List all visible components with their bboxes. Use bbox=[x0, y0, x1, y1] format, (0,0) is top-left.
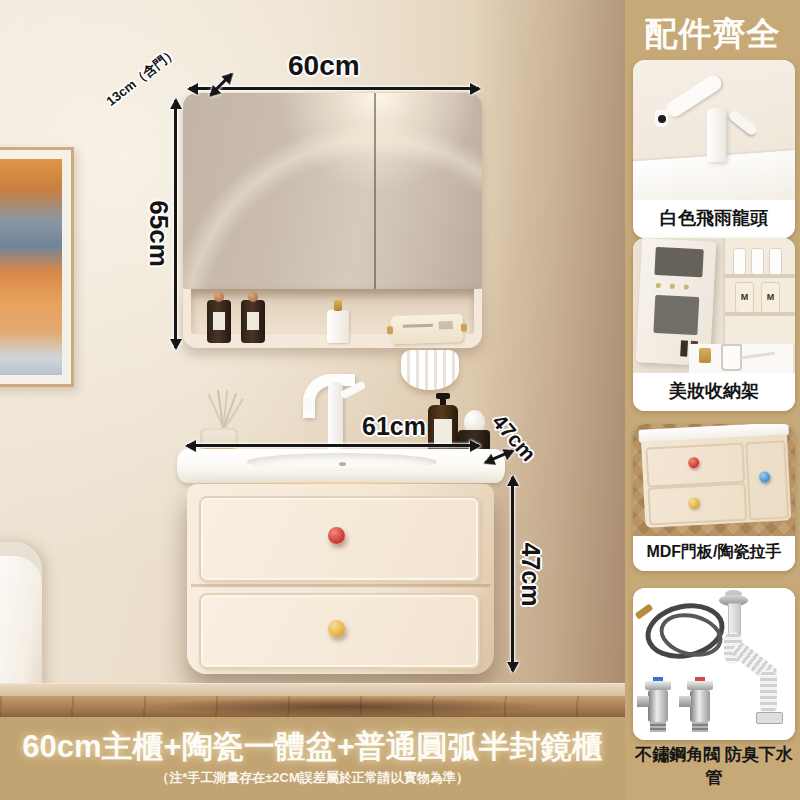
tissue-holder-box bbox=[391, 314, 464, 344]
monogram-bottle: M bbox=[761, 282, 780, 313]
faucet-thumb bbox=[633, 60, 795, 200]
makeup-rack-thumb: M M bbox=[633, 238, 795, 373]
amber-bottle bbox=[207, 300, 231, 343]
box-print bbox=[439, 321, 453, 329]
dimension-label-mirror-height: 65cm bbox=[143, 197, 174, 271]
thumb-vanity-unit bbox=[638, 424, 793, 532]
mirror-door-seam bbox=[374, 93, 376, 289]
dimension-arrow-mirror-height bbox=[174, 100, 177, 348]
thumb-faucet-handle bbox=[727, 109, 758, 137]
valve-cap bbox=[687, 681, 713, 690]
corrugated-pipe-segment bbox=[760, 670, 777, 714]
drain-stem bbox=[728, 603, 741, 635]
vanity-cabinet bbox=[187, 484, 494, 674]
accessory-label: 白色飛雨龍頭 bbox=[633, 200, 795, 238]
bottle-cap bbox=[214, 292, 224, 302]
floor-shadow bbox=[150, 697, 540, 716]
door-hook bbox=[684, 284, 689, 289]
valve-outlet bbox=[679, 696, 691, 707]
box-endcap bbox=[461, 324, 467, 332]
gold-perfume bbox=[699, 348, 711, 363]
bottle-label bbox=[247, 312, 259, 330]
white-bottle bbox=[733, 248, 746, 275]
thumb-cabinet-body bbox=[641, 434, 791, 528]
door-hook bbox=[656, 283, 661, 288]
product-listing-image: 60cm 13cm（含門） 65cm 61cm 47cm 47cm 配件齊全 白… bbox=[0, 0, 800, 800]
valve-cap bbox=[645, 681, 671, 690]
ceramic-knob-yellow bbox=[328, 620, 345, 637]
accessory-card-makeup-rack: M M 美妝收納架 bbox=[633, 238, 795, 411]
perfume-cap bbox=[334, 300, 342, 311]
door-mirror-strip bbox=[653, 295, 699, 335]
angle-valve-blue bbox=[647, 680, 673, 732]
box-print bbox=[403, 324, 433, 328]
thumb-faucet-body bbox=[707, 108, 726, 162]
valve-body bbox=[690, 690, 710, 722]
drawer-divider bbox=[191, 584, 490, 587]
framed-art bbox=[0, 147, 74, 387]
dimension-arrow-vanity-height bbox=[511, 477, 514, 671]
mirror-cabinet bbox=[183, 93, 482, 289]
valve-thread bbox=[692, 722, 708, 732]
art-image bbox=[0, 159, 62, 375]
door-pocket-item bbox=[680, 340, 688, 356]
wall-skirting bbox=[0, 683, 625, 697]
bathroom-scene: 60cm 13cm（含門） 65cm 61cm 47cm 47cm bbox=[0, 0, 625, 717]
hose-fitting bbox=[635, 603, 654, 619]
dimension-label-mirror-width: 60cm bbox=[288, 50, 360, 82]
thumb-faucet-outlet-hole bbox=[658, 115, 666, 123]
glass-cup bbox=[721, 344, 742, 371]
angle-valve-red bbox=[689, 680, 715, 732]
bottle-cap bbox=[248, 292, 258, 302]
door-handle-thumb bbox=[633, 424, 795, 536]
valve-pipe-thumb bbox=[633, 588, 795, 740]
banner-title: 60cm主櫃+陶瓷一體盆+普通圓弧半封鏡櫃 bbox=[0, 726, 625, 768]
bottom-banner: 60cm主櫃+陶瓷一體盆+普通圓弧半封鏡櫃 （注*手工測量存在±2CM誤差屬於正… bbox=[0, 717, 625, 800]
thumb-shelf-unit: M M bbox=[723, 238, 795, 344]
dimension-label-vanity-height: 47cm bbox=[516, 538, 545, 612]
accessory-card-door-handle: MDF門板/陶瓷拉手 bbox=[633, 424, 795, 571]
white-bottle bbox=[751, 248, 764, 275]
hanging-tissue bbox=[401, 350, 459, 390]
accessory-card-faucet: 白色飛雨龍頭 bbox=[633, 60, 795, 238]
ceramic-knob-red bbox=[328, 527, 345, 544]
faucet-outlet bbox=[303, 398, 315, 412]
door-mirror-strip bbox=[654, 247, 703, 277]
box-endcap bbox=[387, 326, 393, 334]
perfume-bottle bbox=[327, 310, 349, 343]
valve-thread bbox=[650, 722, 666, 732]
door-hook bbox=[670, 284, 675, 289]
bottle-monogram-text: M bbox=[741, 292, 749, 302]
monogram-bottle: M bbox=[735, 282, 754, 313]
amber-bottle bbox=[241, 300, 265, 343]
dimension-arrow-vanity-width bbox=[187, 444, 479, 447]
valve-outlet bbox=[637, 696, 649, 707]
accessory-label: 不鏽鋼角閥 防臭下水管 bbox=[633, 744, 795, 790]
sidebar-title: 配件齊全 bbox=[625, 12, 800, 57]
white-bottle bbox=[769, 248, 782, 275]
dimension-label-vanity-width: 61cm bbox=[362, 412, 426, 441]
ceramic-sink-counter bbox=[177, 449, 505, 483]
accessory-label: MDF門板/陶瓷拉手 bbox=[633, 536, 795, 571]
dimension-arrow-mirror-width bbox=[189, 87, 479, 90]
accessory-card-valve-pipe bbox=[633, 588, 795, 740]
bottle-monogram-text: M bbox=[767, 292, 775, 302]
banner-note: （注*手工測量存在±2CM誤差屬於正常請以實物為準） bbox=[0, 769, 625, 787]
sink-drain bbox=[339, 462, 346, 466]
valve-body bbox=[648, 690, 668, 722]
pipe-end-fitting bbox=[756, 712, 783, 724]
soap-label bbox=[434, 419, 452, 445]
accessory-label: 美妝收納架 bbox=[633, 373, 795, 411]
bottle-label bbox=[213, 312, 225, 330]
